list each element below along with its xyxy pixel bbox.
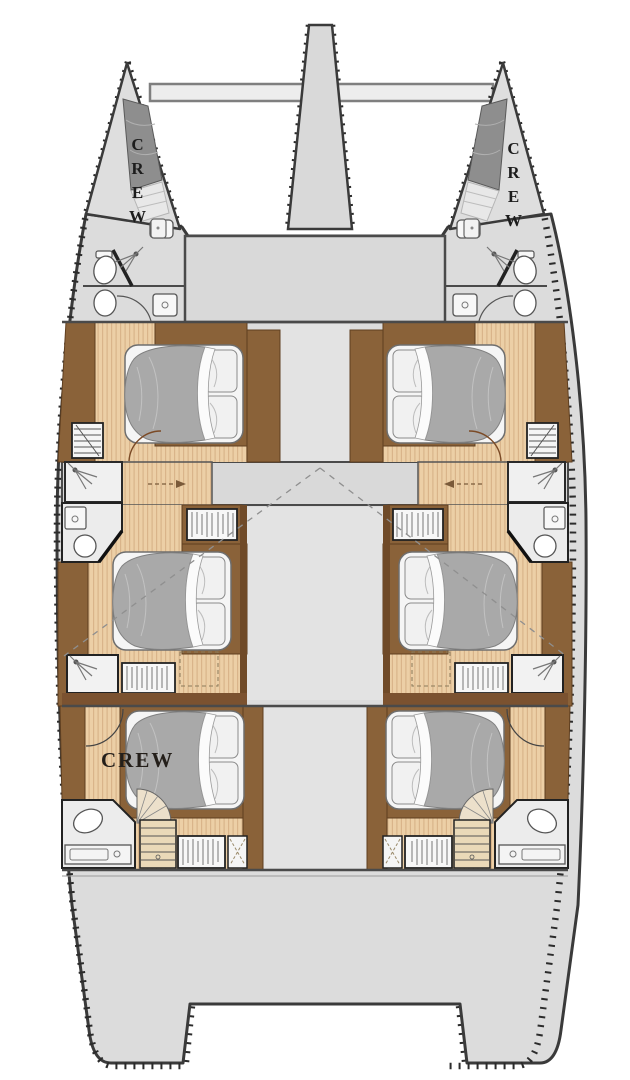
port-bow-crew-label: CREW <box>129 135 146 231</box>
stairs <box>72 423 103 458</box>
mid-bed <box>113 552 231 650</box>
toilet-icon <box>74 535 96 557</box>
mid-cabin-inner-trim <box>240 505 247 706</box>
wardrobe <box>122 663 175 693</box>
stairs <box>140 820 176 868</box>
shower-stall <box>67 655 118 693</box>
catamaran-deck-plan: CREW CREW CREW <box>0 0 630 1080</box>
sink-icon <box>153 294 177 316</box>
deck-hatch <box>151 219 166 238</box>
port-aft-crew-label: CREW <box>101 748 174 773</box>
fwd-bed <box>125 345 243 443</box>
center-channel-aft <box>263 708 367 868</box>
walkway-shower <box>65 462 122 502</box>
walkway-corridor-wood <box>122 462 212 505</box>
hatch-x-box <box>228 836 247 868</box>
wardrobe <box>178 836 225 868</box>
mid-aft-bulkhead <box>62 693 247 706</box>
center-channel-fwd <box>280 324 350 462</box>
starboard-bow-crew-label: CREW <box>505 139 522 235</box>
toilet-icon <box>94 290 116 316</box>
center-nacelle <box>288 25 352 229</box>
wardrobe <box>182 505 242 544</box>
fwd-cabin-inner-trim <box>247 330 280 462</box>
sink-icon <box>65 507 86 529</box>
sink-icon <box>65 845 131 864</box>
deck-plan-svg <box>0 0 630 1080</box>
foredeck <box>185 236 445 322</box>
aft-cabin-hull-trim <box>60 706 85 800</box>
center-channel-mid <box>247 507 383 700</box>
